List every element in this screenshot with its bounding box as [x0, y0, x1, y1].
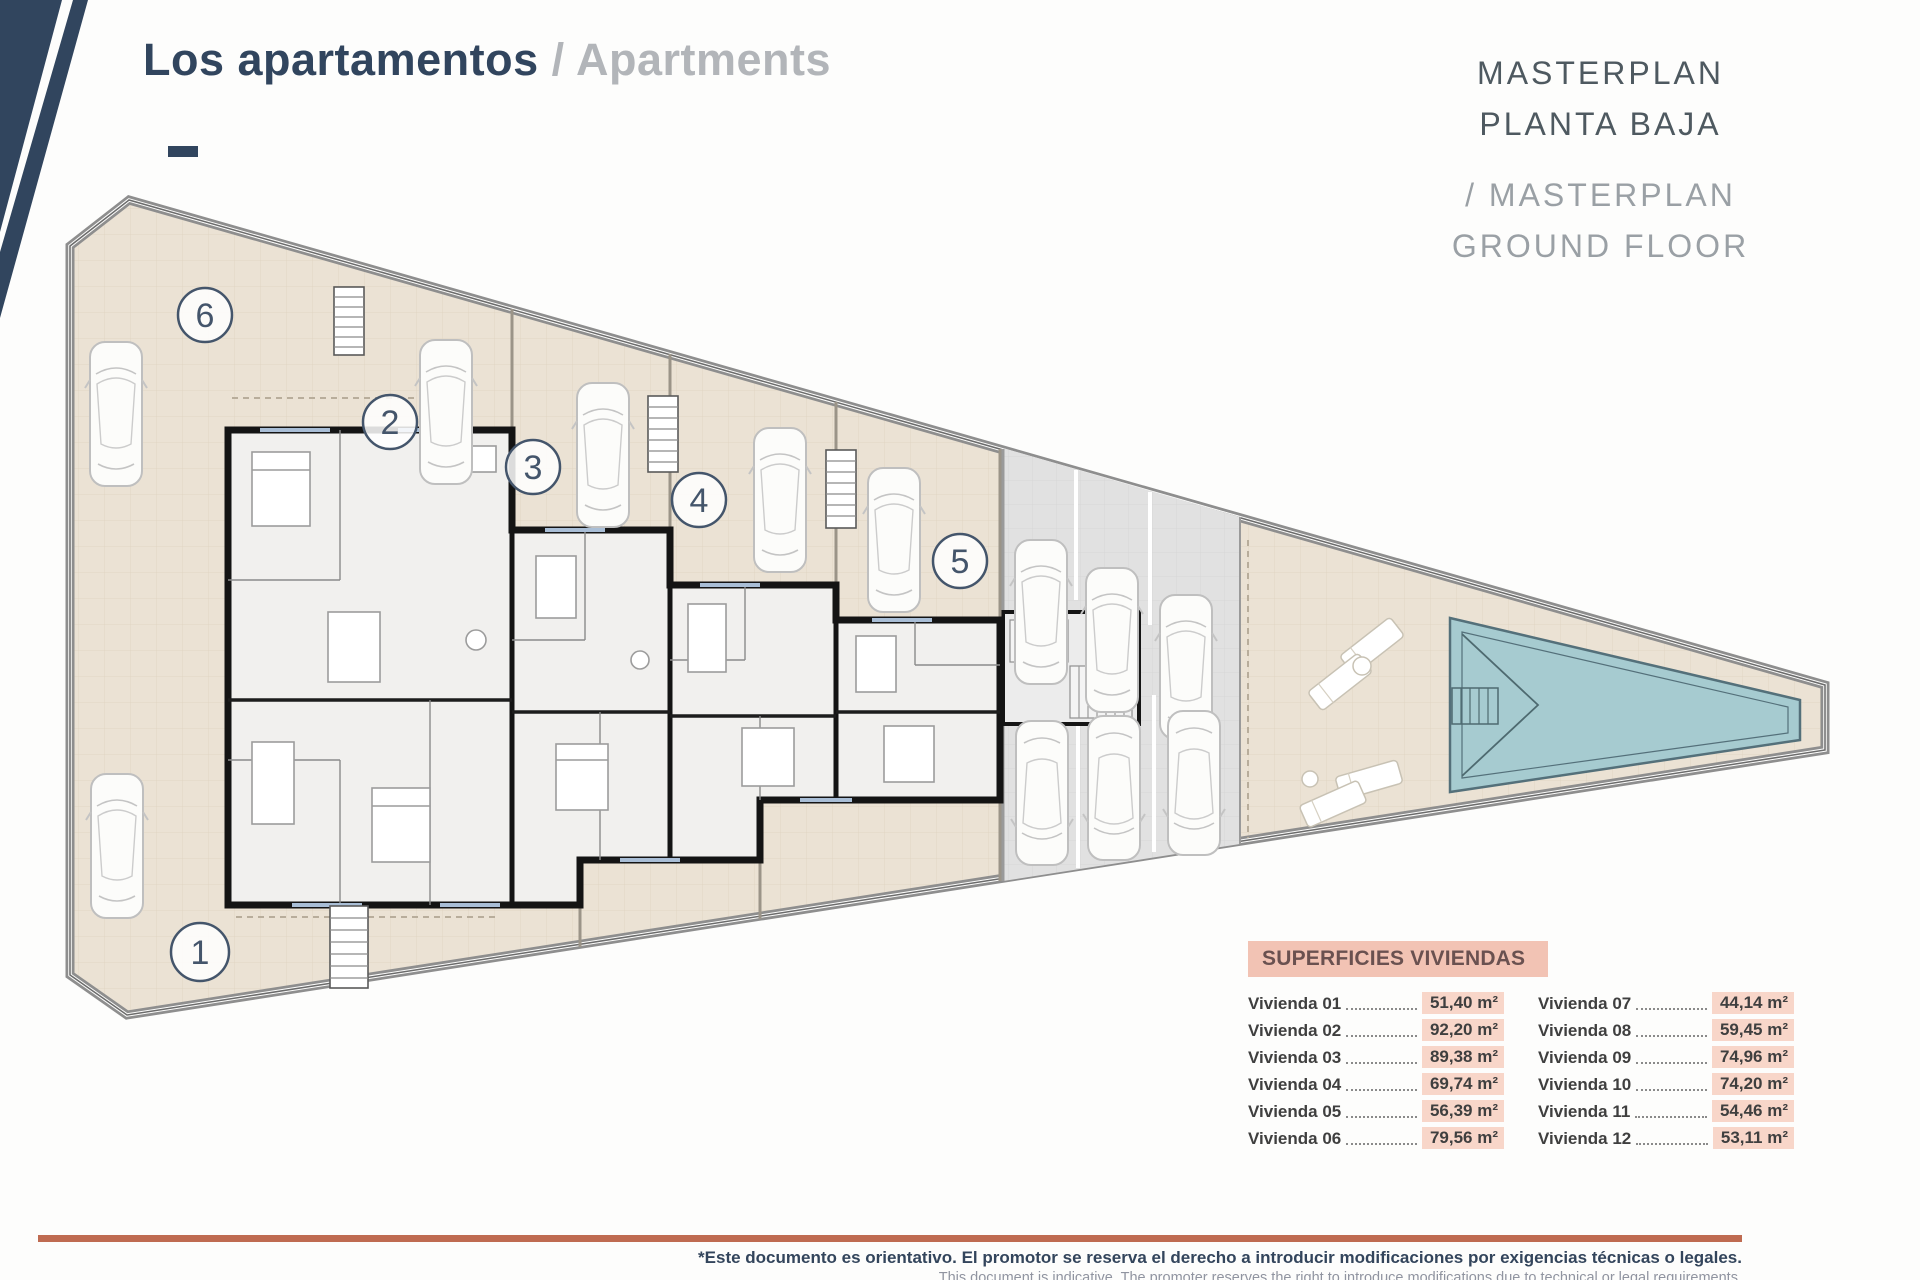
vivienda-area-value: 54,46 m²	[1712, 1100, 1794, 1122]
vivienda-label: Vivienda 08	[1538, 1021, 1631, 1041]
table-row: Vivienda 1253,11 m²	[1538, 1122, 1794, 1149]
table-row: Vivienda 0151,40 m²	[1248, 987, 1504, 1014]
dotted-leader	[1636, 1008, 1707, 1010]
dotted-leader	[1636, 1143, 1708, 1145]
vivienda-label: Vivienda 06	[1248, 1129, 1341, 1149]
table-row: Vivienda 1074,20 m²	[1538, 1068, 1794, 1095]
svg-text:6: 6	[196, 297, 215, 335]
svg-text:1: 1	[191, 934, 210, 972]
dotted-leader	[1346, 1035, 1417, 1037]
vivienda-area-value: 56,39 m²	[1422, 1100, 1504, 1122]
vivienda-label: Vivienda 10	[1538, 1075, 1631, 1095]
vivienda-label: Vivienda 12	[1538, 1129, 1631, 1149]
dotted-leader	[1346, 1116, 1417, 1118]
table-row: Vivienda 0679,56 m²	[1248, 1122, 1504, 1149]
dotted-leader	[1635, 1116, 1707, 1118]
unit-badge-4: 4	[672, 473, 726, 527]
table-row: Vivienda 0469,74 m²	[1248, 1068, 1504, 1095]
dotted-leader	[1346, 1062, 1417, 1064]
unit-badge-5: 5	[933, 534, 987, 588]
vivienda-label: Vivienda 03	[1248, 1048, 1341, 1068]
table-row: Vivienda 0744,14 m²	[1538, 987, 1794, 1014]
table-row: Vivienda 1154,46 m²	[1538, 1095, 1794, 1122]
vivienda-area-value: 79,56 m²	[1422, 1127, 1504, 1149]
unit-badge-2: 2	[363, 395, 417, 449]
vivienda-label: Vivienda 07	[1538, 994, 1631, 1014]
dotted-leader	[1636, 1089, 1707, 1091]
disclaimer: *Este documento es orientativo. El promo…	[698, 1247, 1742, 1280]
dotted-leader	[1636, 1035, 1707, 1037]
surfaces-table: SUPERFICIES VIVIENDAS Vivienda 0151,40 m…	[1248, 941, 1796, 1149]
vivienda-label: Vivienda 09	[1538, 1048, 1631, 1068]
unit-badge-1: 1	[171, 923, 229, 981]
dotted-leader	[1636, 1062, 1707, 1064]
vivienda-label: Vivienda 01	[1248, 994, 1341, 1014]
footer-accent-bar	[38, 1235, 1742, 1242]
vivienda-area-value: 59,45 m²	[1712, 1019, 1794, 1041]
vivienda-area-value: 74,20 m²	[1712, 1073, 1794, 1095]
svg-text:3: 3	[524, 449, 543, 487]
surfaces-table-column-2: Vivienda 0744,14 m²Vivienda 0859,45 m²Vi…	[1538, 987, 1794, 1149]
surfaces-table-title: SUPERFICIES VIVIENDAS	[1248, 941, 1548, 977]
dotted-leader	[1346, 1089, 1417, 1091]
svg-text:4: 4	[690, 482, 709, 520]
table-row: Vivienda 0389,38 m²	[1248, 1041, 1504, 1068]
page: Los apartamentos / Apartments MASTERPLAN…	[0, 0, 1920, 1280]
unit-badge-3: 3	[506, 440, 560, 494]
vivienda-area-value: 92,20 m²	[1422, 1019, 1504, 1041]
vivienda-label: Vivienda 04	[1248, 1075, 1341, 1095]
vivienda-area-value: 51,40 m²	[1422, 992, 1504, 1014]
dotted-leader	[1346, 1008, 1417, 1010]
table-row: Vivienda 0556,39 m²	[1248, 1095, 1504, 1122]
table-row: Vivienda 0974,96 m²	[1538, 1041, 1794, 1068]
dotted-leader	[1346, 1143, 1417, 1145]
vivienda-label: Vivienda 05	[1248, 1102, 1341, 1122]
disclaimer-spanish: *Este documento es orientativo. El promo…	[698, 1247, 1742, 1269]
svg-text:5: 5	[951, 543, 970, 581]
vivienda-area-value: 44,14 m²	[1712, 992, 1794, 1014]
table-row: Vivienda 0859,45 m²	[1538, 1014, 1794, 1041]
vivienda-area-value: 74,96 m²	[1712, 1046, 1794, 1068]
vivienda-area-value: 69,74 m²	[1422, 1073, 1504, 1095]
disclaimer-english: This document is indicative. The promote…	[698, 1269, 1742, 1280]
unit-badge-6: 6	[178, 288, 232, 342]
vivienda-label: Vivienda 02	[1248, 1021, 1341, 1041]
surfaces-table-column-1: Vivienda 0151,40 m²Vivienda 0292,20 m²Vi…	[1248, 987, 1504, 1149]
svg-text:2: 2	[381, 404, 400, 442]
table-row: Vivienda 0292,20 m²	[1248, 1014, 1504, 1041]
vivienda-area-value: 89,38 m²	[1422, 1046, 1504, 1068]
vivienda-area-value: 53,11 m²	[1713, 1127, 1794, 1149]
vivienda-label: Vivienda 11	[1538, 1102, 1630, 1122]
